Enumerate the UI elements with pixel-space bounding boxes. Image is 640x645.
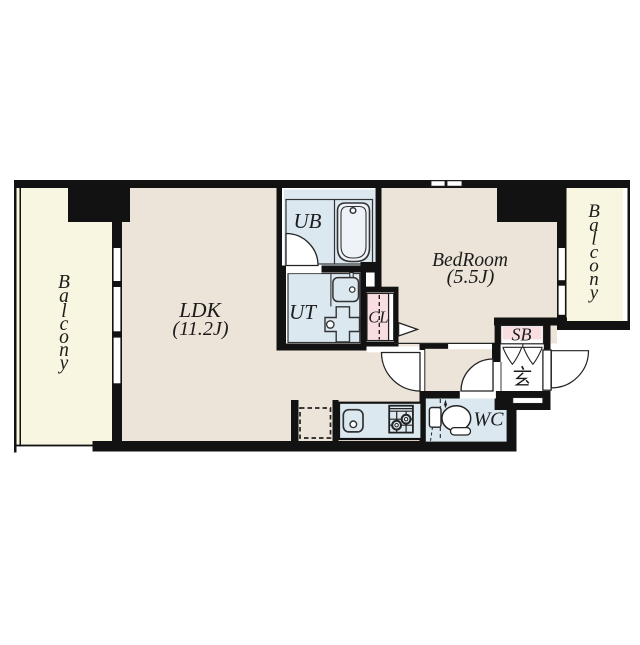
- svg-text:y: y: [58, 353, 69, 374]
- svg-text:(11.2J): (11.2J): [172, 318, 229, 340]
- svg-text:WC: WC: [474, 409, 505, 431]
- svg-text:UT: UT: [289, 300, 317, 324]
- svg-text:CL: CL: [368, 308, 388, 327]
- svg-text:UB: UB: [294, 209, 322, 233]
- svg-text:SB: SB: [512, 325, 532, 345]
- svg-text:y: y: [588, 283, 599, 304]
- svg-text:(5.5J): (5.5J): [447, 266, 495, 288]
